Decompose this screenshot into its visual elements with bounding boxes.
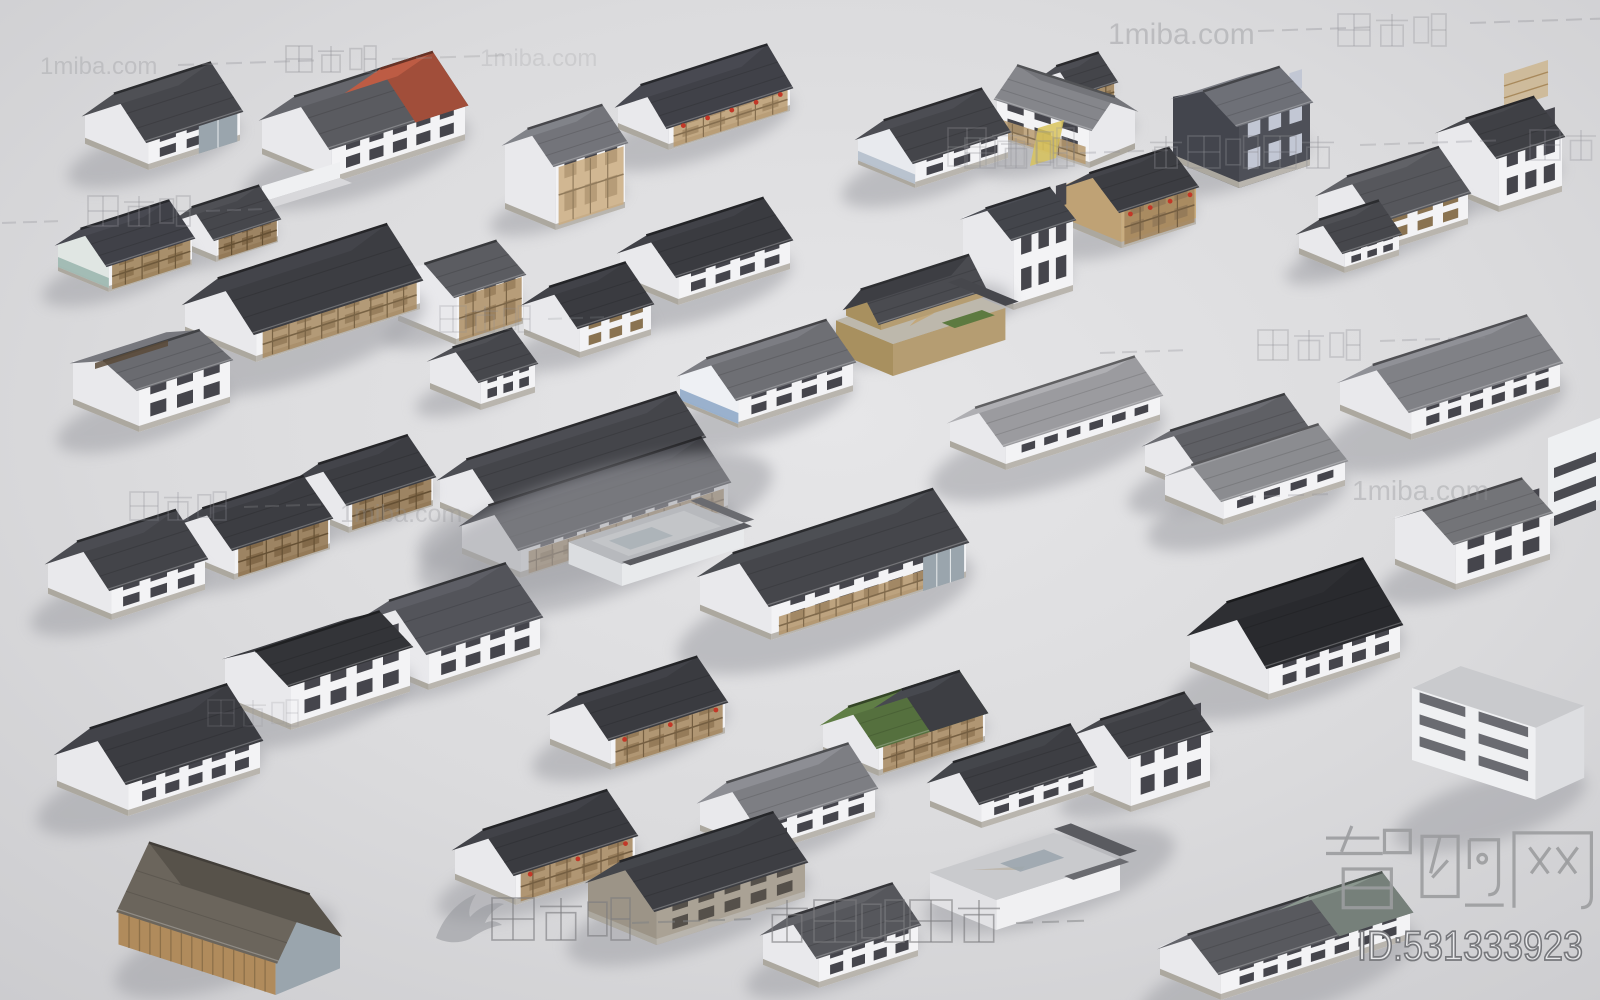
svg-text:1miba.com: 1miba.com: [1352, 475, 1489, 506]
svg-text:ID:531333923: ID:531333923: [1357, 922, 1583, 969]
svg-text:1miba.com: 1miba.com: [1108, 18, 1255, 51]
svg-text:1miba.com: 1miba.com: [340, 500, 462, 528]
svg-text:1miba.com: 1miba.com: [480, 45, 597, 72]
svg-text:1miba.com: 1miba.com: [40, 53, 157, 80]
